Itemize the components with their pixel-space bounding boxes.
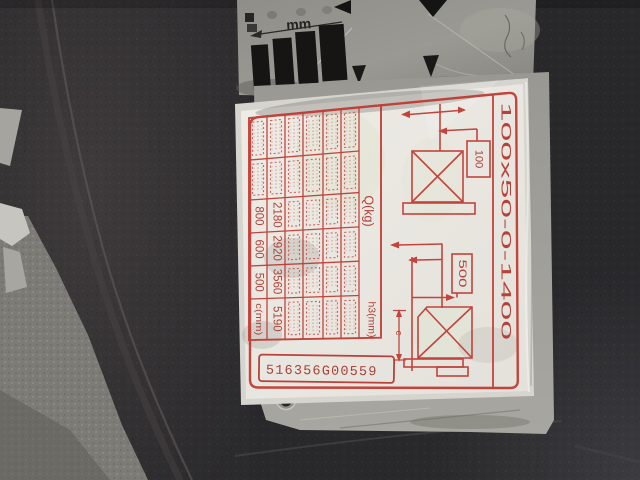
serial-number: 516356G00559 [266,364,378,381]
fork-spec-text: 100x50-0-1400 [499,102,515,341]
capacity-cell-value: 800 [253,206,265,225]
dim-line-mid [416,260,442,261]
wear-bar-2 [272,38,294,88]
dim-100-label: 100 [473,150,485,168]
backing-grime [410,415,530,429]
capacity-cell-value: 500 [253,273,265,292]
capacity-cell-value: 600 [253,239,265,258]
wear-bar-3 [295,31,319,84]
dim-500-label: 500 [456,260,468,288]
capacity-cell-value: 2180 [271,202,283,228]
dim-c-label: c [393,331,404,336]
photo-forklift-capacity-plate: mm [0,0,640,480]
worn-square-1 [245,13,254,22]
capacity-cell-value: c(mm) [253,303,264,335]
capacity-cell-value: 5190 [271,306,283,332]
wear-bar-4 [319,24,348,82]
table-h3-header: h3(mm) [366,302,377,338]
capacity-cell-value: 2920 [271,235,283,261]
worn-square-2 [247,24,257,32]
capacity-cell-value: 3560 [271,269,283,295]
photo-canvas: mm [0,0,640,480]
wear-bar-1 [251,44,271,91]
dim-line-top [398,244,442,245]
table-q-header: Q(kg) [362,195,376,226]
worn-mark-1 [267,11,277,19]
worn-mark-3 [322,6,332,14]
